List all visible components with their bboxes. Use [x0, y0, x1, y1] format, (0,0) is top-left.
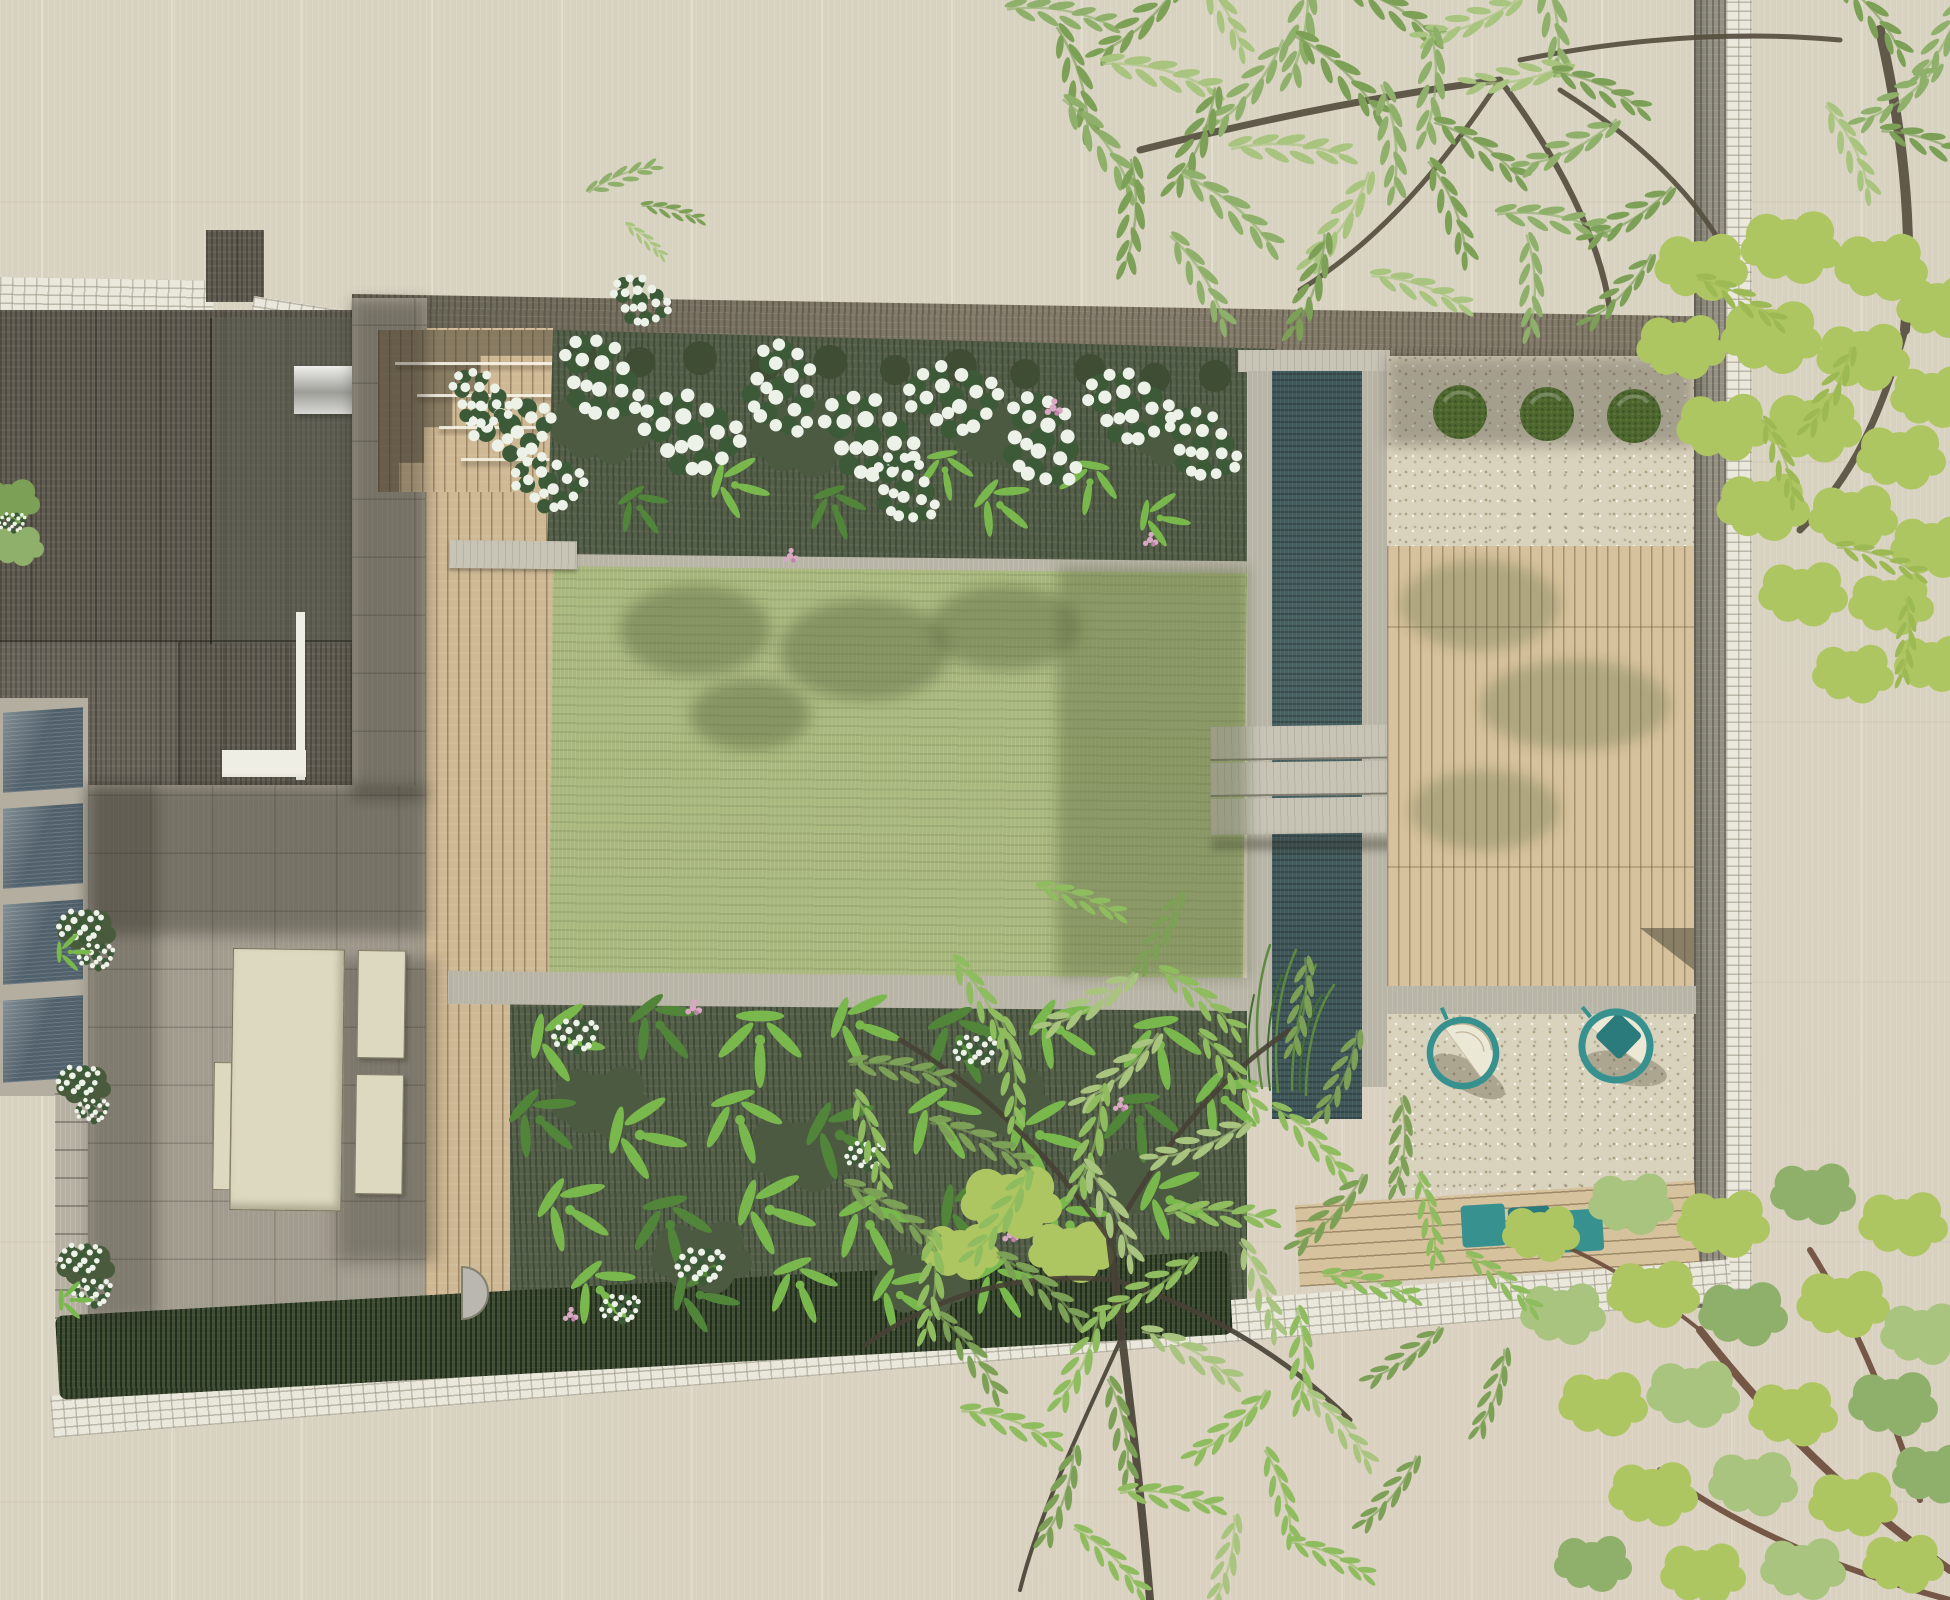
- tree-bottom-center-foliage: [835, 870, 1453, 1600]
- tree-right-yellowgreen: [1636, 211, 1950, 703]
- tree-top-right-foliage: [1001, 0, 1950, 350]
- water-barrel-feature: [462, 1267, 488, 1319]
- hanging-chair-right: [1568, 1001, 1678, 1093]
- planting-and-trees-overlay: [0, 0, 1950, 1600]
- tree-bottom-right: [1457, 1163, 1950, 1600]
- topiary-balls: [1433, 385, 1661, 443]
- garden-plan-canvas: [0, 0, 1950, 1600]
- wall-planters: [56, 909, 116, 1321]
- corner-shadow-wedge: [1640, 928, 1694, 970]
- hanging-chair-left: [1412, 1005, 1528, 1108]
- tree-bottom-right-foliage: [1457, 1163, 1950, 1600]
- shrub-left-edge: [0, 479, 44, 566]
- tree-bottom-center: [835, 870, 1453, 1600]
- sprig-top-center: [581, 152, 710, 265]
